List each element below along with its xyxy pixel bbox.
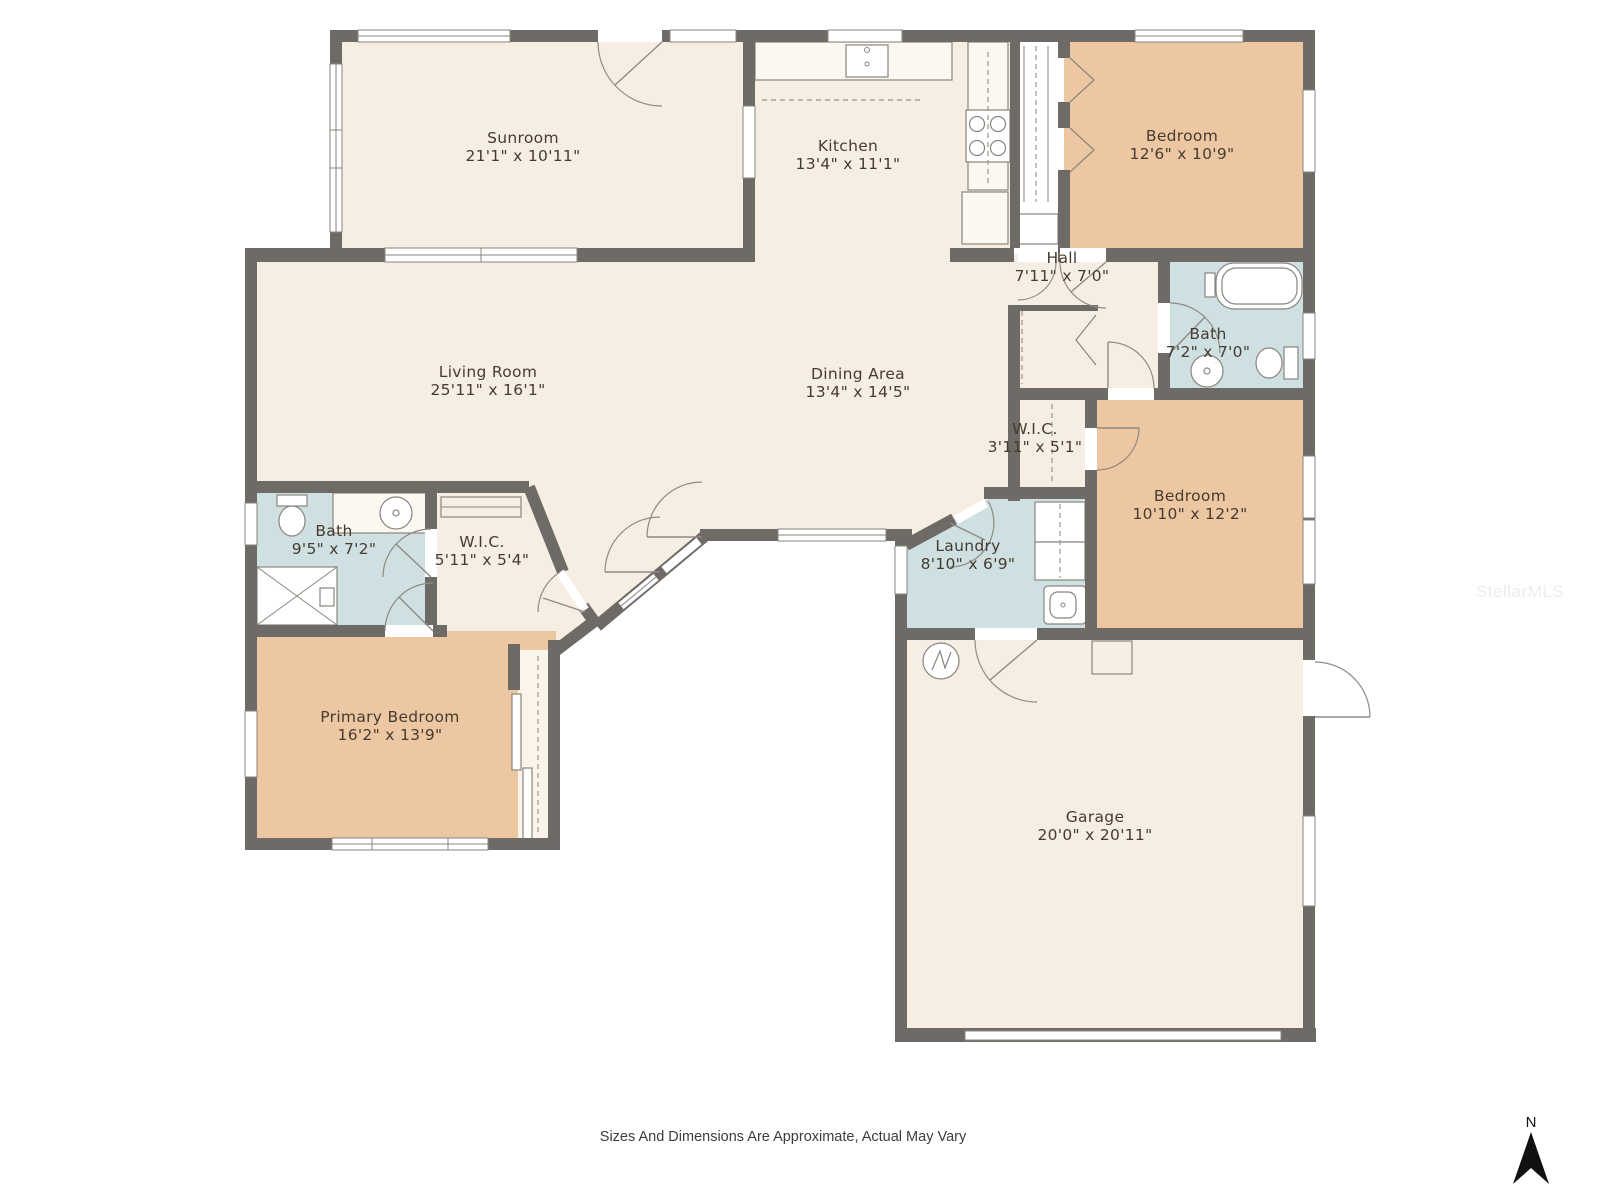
primary-closet-stub: [508, 644, 520, 690]
hall-closet-small: [1018, 214, 1058, 244]
laundry-dims: 8'10" x 6'9": [921, 555, 1016, 573]
shower-controls: [320, 588, 334, 606]
bath-bottom-stub: [433, 625, 447, 637]
wic-left-label: W.I.C.: [459, 533, 505, 551]
bedroom-top-label: Bedroom: [1146, 127, 1218, 145]
primary-bedroom-label: Primary Bedroom: [320, 708, 459, 726]
bath-left-dims: 9'5" x 7'2": [292, 540, 377, 558]
bedroom-right-label: Bedroom: [1154, 487, 1226, 505]
dining-hall-wall: [1008, 305, 1020, 501]
kitchen-label: Kitchen: [818, 137, 878, 155]
wic-right-label: W.I.C.: [1012, 420, 1058, 438]
pantry-wall: [1010, 30, 1020, 248]
wic-bedroom-wall: [1085, 390, 1097, 640]
bedroom-right-door-gap: [1108, 388, 1154, 400]
garage-entry-door-gap: [975, 628, 1037, 640]
bathtub-faucet: [1205, 273, 1215, 297]
kitchen-window: [828, 30, 902, 42]
garage-top-wall: [895, 628, 1315, 640]
sunroom-door-gap: [598, 30, 662, 42]
kitchen-sink: [846, 45, 888, 77]
garage-dims: 20'0" x 20'11": [1037, 826, 1152, 844]
hall-bottom-wall: [1008, 388, 1315, 400]
laundry-label: Laundry: [935, 537, 1000, 555]
bedroom-right-window: [1303, 456, 1315, 518]
bedroom-top-dims: 12'6" x 10'9": [1130, 145, 1235, 163]
garage-side-door-arc: [1315, 662, 1370, 717]
wic-right-dims: 3'11" x 5'1": [988, 438, 1083, 456]
garage-window: [1303, 816, 1315, 906]
closet-slider-panel: [523, 768, 532, 844]
kitchen-wall-stub: [950, 248, 1014, 262]
north-arrow-icon: [1513, 1132, 1549, 1184]
bath-left-label: Bath: [315, 522, 352, 540]
hall-label: Hall: [1047, 249, 1078, 267]
bedroom-closet-stub: [1058, 102, 1070, 128]
bath-left-window: [245, 503, 257, 545]
hall-closet-wall: [1008, 305, 1098, 311]
garage-side-door-gap: [1303, 660, 1315, 716]
garage-label: Garage: [1066, 808, 1125, 826]
bath-top-label: Bath: [1189, 325, 1226, 343]
sunroom-kitchen-window: [743, 106, 755, 178]
hall-dims: 7'11" x 7'0": [1015, 267, 1110, 285]
sunroom-dims: 21'1" x 10'11": [465, 147, 580, 165]
garage-door: [965, 1031, 1281, 1040]
toilet-bowl: [279, 506, 305, 536]
kitchen-dims: 13'4" x 11'1": [796, 155, 901, 173]
disclaimer-text: Sizes And Dimensions Are Approximate, Ac…: [600, 1129, 967, 1145]
water-heater: [923, 643, 959, 679]
bath-left-door-gap: [385, 625, 433, 637]
bedroom-closet-stub: [1058, 42, 1070, 58]
bath-left-sink: [380, 497, 412, 529]
bedroom-right-window: [1303, 520, 1315, 584]
bath-top-window: [1303, 313, 1315, 359]
wic-left-dims: 5'11" x 5'4": [435, 551, 530, 569]
toilet-tank: [277, 495, 307, 506]
bedroom-right-dims: 10'10" x 12'2": [1132, 505, 1247, 523]
floor-plan-drawing: Sunroom 21'1" x 10'11" Kitchen 13'4" x 1…: [0, 0, 1600, 1200]
north-compass: N: [1513, 1114, 1549, 1184]
garage-left-wall: [895, 628, 907, 1040]
sunroom-window: [670, 30, 736, 42]
living-room-label: Living Room: [439, 363, 537, 381]
wic-right-door-gap: [1085, 428, 1097, 470]
refrigerator: [962, 192, 1008, 244]
bath-bottom-wall: [245, 625, 385, 637]
toilet-bowl: [1256, 348, 1282, 378]
north-label: N: [1526, 1114, 1537, 1131]
toilet-tank: [1284, 347, 1298, 379]
floor-plan-page: Sunroom 21'1" x 10'11" Kitchen 13'4" x 1…: [0, 0, 1600, 1200]
stellar-mls-watermark: StellarMLS: [1476, 582, 1564, 601]
dining-area-dims: 13'4" x 14'5": [806, 383, 911, 401]
living-room-dims: 25'11" x 16'1": [430, 381, 545, 399]
sunroom-label: Sunroom: [487, 129, 559, 147]
bath-left-top-wall: [245, 481, 529, 493]
laundry-window: [895, 546, 907, 594]
bedroom-closet-stub: [1058, 170, 1070, 248]
primary-right-wall: [548, 640, 560, 844]
bath-top-dims: 7'2" x 7'0": [1166, 343, 1251, 361]
primary-bedroom-dims: 16'2" x 13'9": [338, 726, 443, 744]
dining-area-label: Dining Area: [811, 365, 905, 383]
bedroom-top-right-window: [1303, 90, 1315, 172]
primary-left-window: [245, 711, 257, 777]
wic-laundry-wall: [984, 487, 1088, 499]
closet-slider-panel: [512, 694, 521, 770]
